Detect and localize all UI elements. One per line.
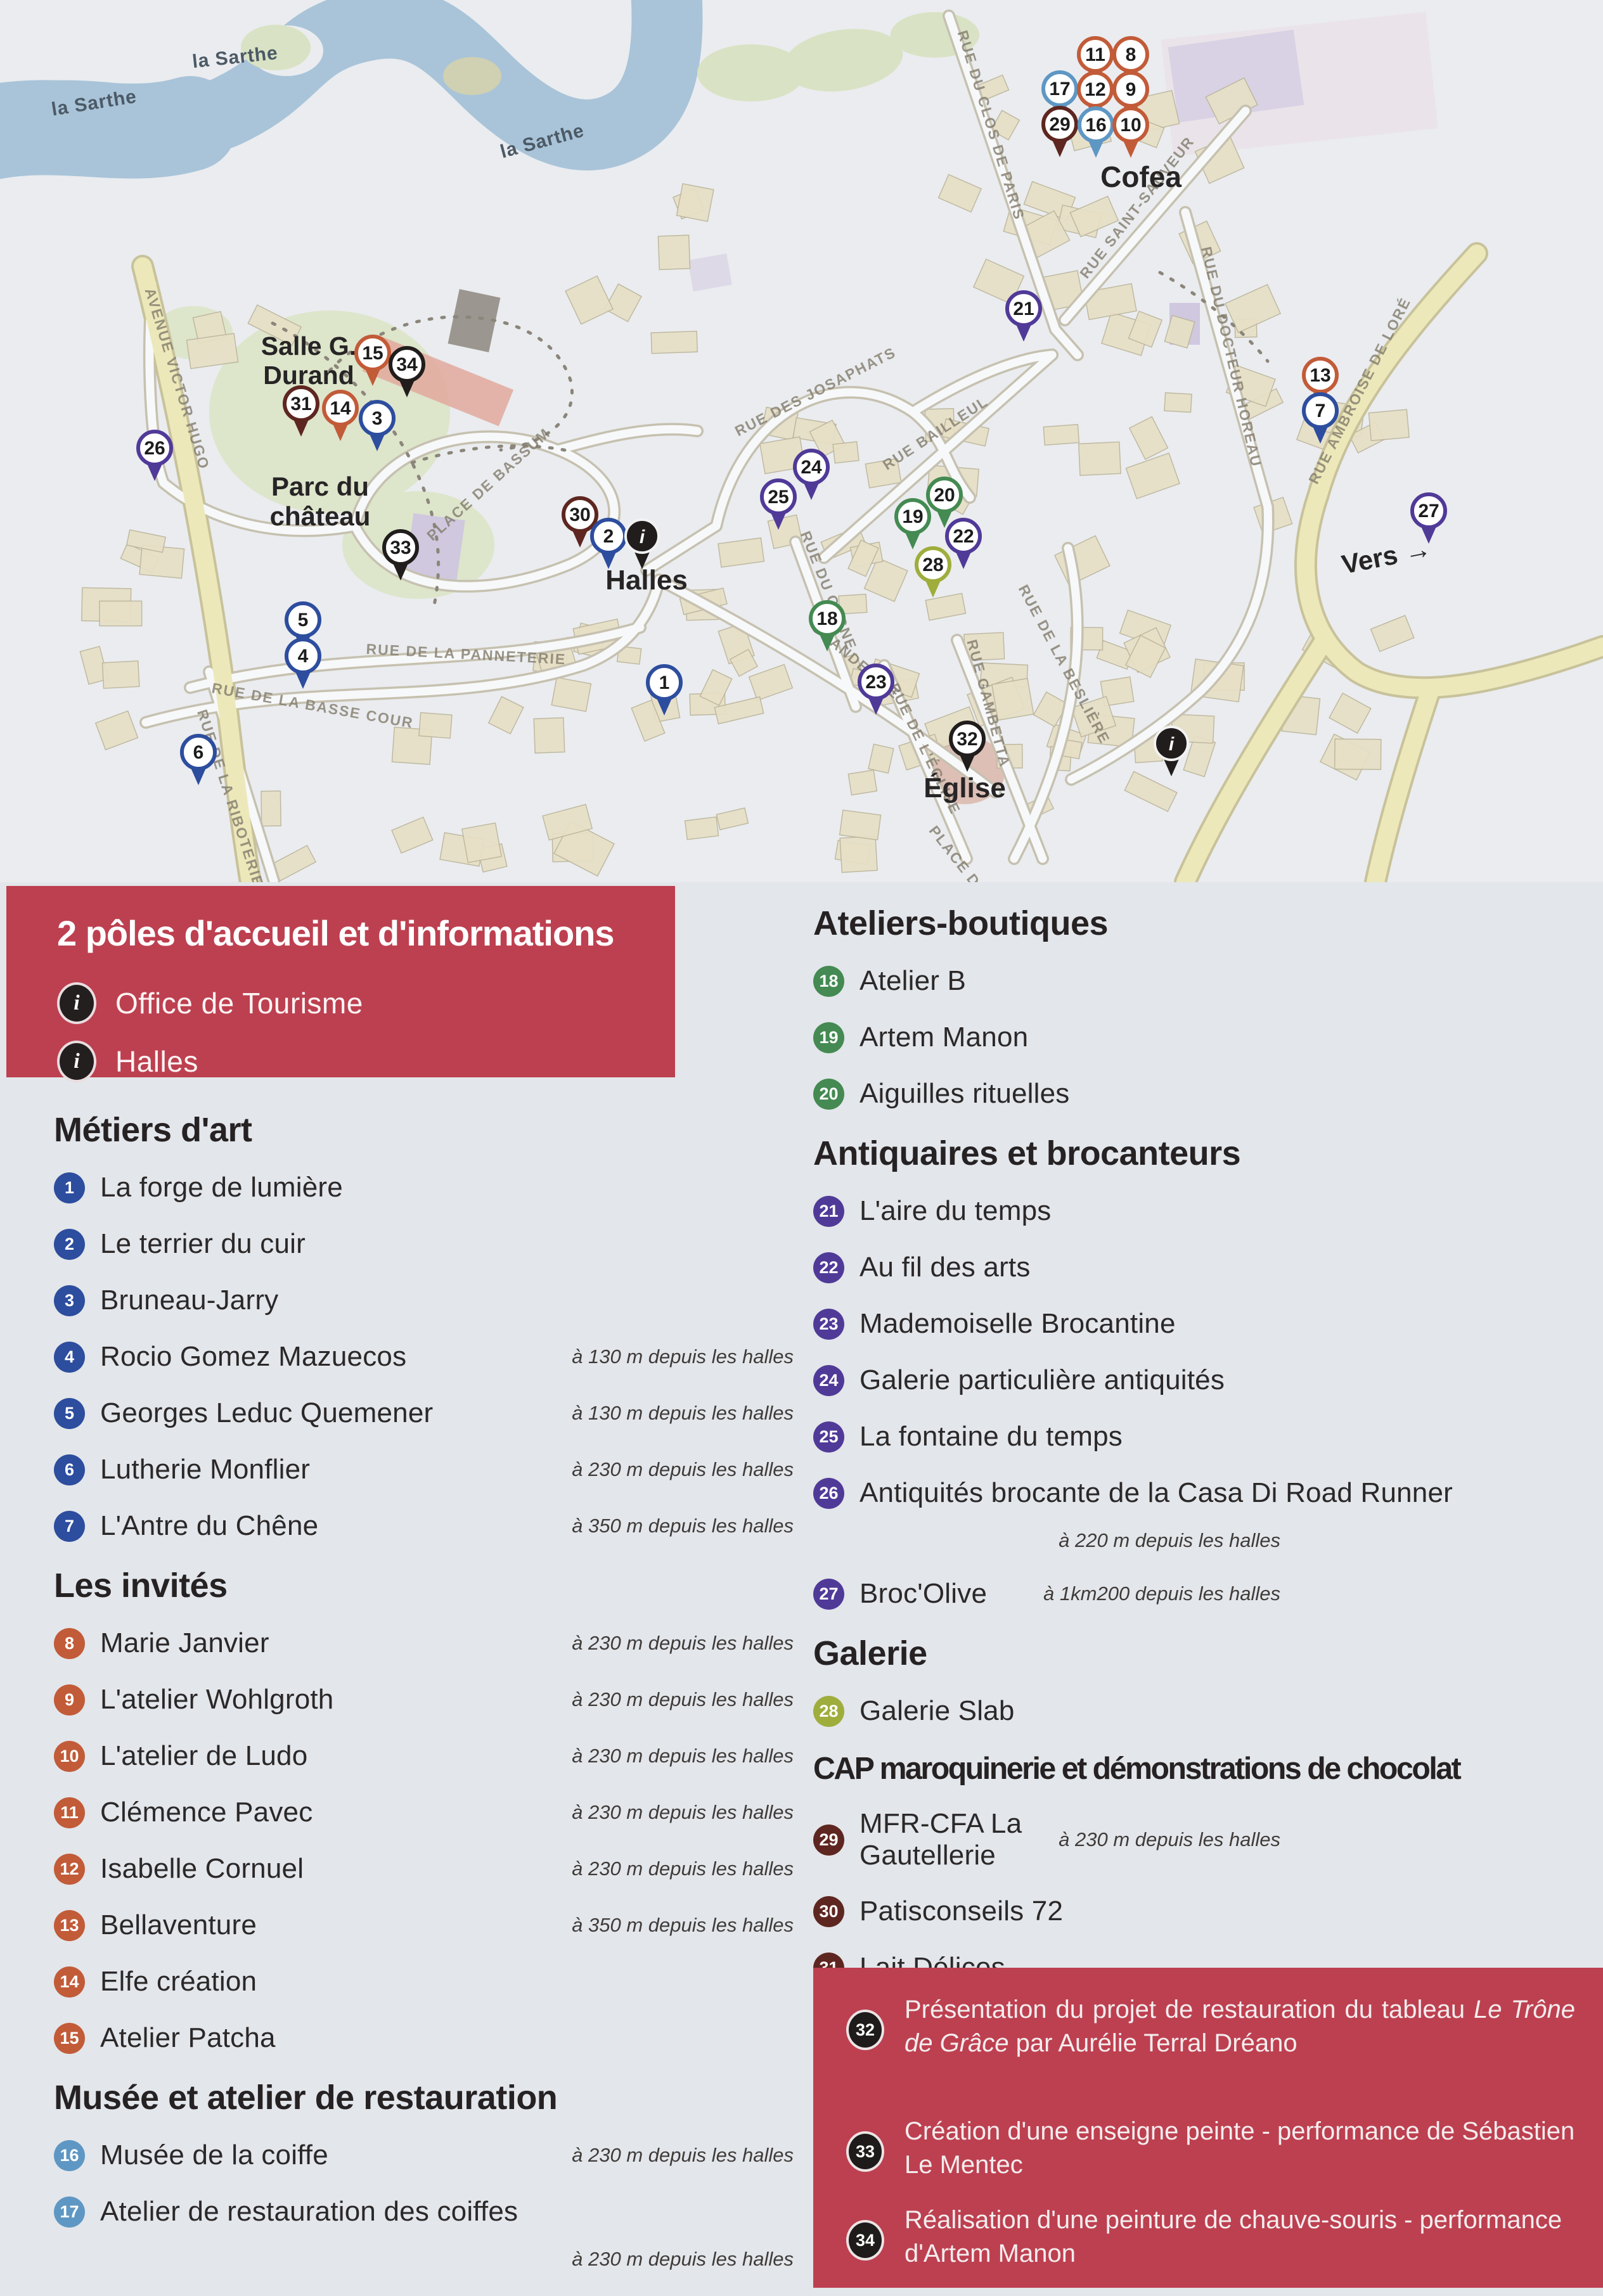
legend-item-3: 3Bruneau-Jarry [54, 1284, 799, 1317]
legend-item-label: Atelier de restauration des coiffes [100, 2196, 518, 2228]
svg-text:3: 3 [372, 408, 383, 429]
distance-note: à 230 m depuis les halles [572, 1745, 794, 1767]
legend-item-number: 16 [54, 2140, 85, 2171]
legend-item-number: 3 [54, 1285, 85, 1316]
legend-item-label: La fontaine du temps [859, 1421, 1123, 1453]
distance-note: à 230 m depuis les halles [572, 1632, 794, 1655]
svg-text:24: 24 [801, 457, 822, 478]
svg-text:28: 28 [922, 555, 943, 575]
svg-text:22: 22 [953, 526, 974, 547]
info-icon: i [57, 982, 96, 1024]
svg-text:12: 12 [1085, 79, 1105, 100]
performance-item-34: 34Réalisation d'une peinture de chauve-s… [846, 2203, 1575, 2271]
distance-note: à 230 m depuis les halles [1059, 1828, 1280, 1851]
legend-item-label: Antiquités brocante de la Casa Di Road R… [859, 1477, 1453, 1509]
distance-note: à 230 m depuis les halles [54, 2248, 799, 2271]
legend-item-label: Galerie particulière antiquités [859, 1364, 1225, 1396]
legend-item-label: Bellaventure [100, 1909, 257, 1941]
legend-item-4: 4Rocio Gomez Mazuecosà 130 m depuis les … [54, 1340, 799, 1373]
performance-item-text: Réalisation d'une peinture de chauve-sou… [905, 2203, 1575, 2271]
legend-item-2: 2Le terrier du cuir [54, 1228, 799, 1260]
legend-item-26: 26Antiquités brocante de la Casa Di Road… [813, 1477, 1594, 1510]
legend-item-number: 27 [813, 1579, 844, 1610]
svg-text:27: 27 [1418, 501, 1439, 522]
legend-item-number: 21 [813, 1196, 844, 1227]
legend-item-number: 7 [54, 1511, 85, 1542]
distance-note: à 350 m depuis les halles [572, 1515, 794, 1537]
town-map: AVENUE VICTOR HUGORUE DE LA RIBOTERIERUE… [0, 0, 1603, 882]
svg-text:1: 1 [659, 672, 670, 693]
legend-item-number: 22 [813, 1252, 844, 1283]
info-points-box: 2 pôles d'accueil et d'informations iOff… [6, 886, 675, 1077]
legend-item-number: 13 [54, 1910, 85, 1941]
legend-item-number: 29 [813, 1825, 844, 1856]
legend-item-16: 16Musée de la coiffeà 230 m depuis les h… [54, 2139, 799, 2172]
svg-text:17: 17 [1049, 79, 1070, 99]
legend-item-30: 30Patisconseils 72 [813, 1895, 1594, 1928]
svg-text:8: 8 [1126, 44, 1136, 65]
legend-item-label: La forge de lumière [100, 1172, 343, 1203]
performances-box: 32Présentation du projet de restauration… [813, 1968, 1603, 2288]
svg-text:34: 34 [396, 354, 418, 375]
legend-item-28: 28Galerie Slab [813, 1695, 1594, 1728]
legend-item-number: 8 [54, 1628, 85, 1659]
legend-item-8: 8Marie Janvierà 230 m depuis les halles [54, 1627, 799, 1660]
legend-section-title: Les invités [54, 1566, 799, 1605]
legend-item-label: Clémence Pavec [100, 1797, 312, 1828]
legend-item-label: Aiguilles rituelles [859, 1078, 1070, 1110]
performance-item-number: 32 [846, 2010, 884, 2050]
svg-text:10: 10 [1120, 115, 1141, 136]
legend-column-right: Ateliers-boutiques18Atelier B19Artem Man… [813, 895, 1594, 2008]
info-box-item: iHalles [57, 1041, 198, 1082]
svg-text:13: 13 [1310, 365, 1330, 386]
legend-item-number: 6 [54, 1454, 85, 1485]
legend-item-number: 10 [54, 1741, 85, 1772]
svg-text:31: 31 [290, 394, 311, 414]
legend-item-label: Artem Manon [859, 1022, 1028, 1053]
legend-item-number: 14 [54, 1966, 85, 1998]
legend-item-label: Atelier B [859, 965, 966, 997]
legend-item-24: 24Galerie particulière antiquités [813, 1364, 1594, 1397]
svg-text:14: 14 [330, 398, 351, 419]
legend-item-number: 11 [54, 1797, 85, 1828]
legend-item-18: 18Atelier B [813, 965, 1594, 997]
svg-text:6: 6 [193, 742, 204, 763]
legend-item-number: 17 [54, 2197, 85, 2228]
legend-item-29: 29MFR-CFA La Gautellerieà 230 m depuis l… [813, 1808, 1594, 1871]
distance-note: à 230 m depuis les halles [572, 1857, 794, 1880]
legend-item-label: Patisconseils 72 [859, 1895, 1063, 1927]
legend-item-25: 25La fontaine du temps [813, 1420, 1594, 1453]
legend-item-number: 28 [813, 1696, 844, 1727]
legend-item-number: 5 [54, 1398, 85, 1429]
legend-item-12: 12Isabelle Cornuelà 230 m depuis les hal… [54, 1852, 799, 1885]
svg-text:32: 32 [956, 729, 977, 750]
legend-item-15: 15Atelier Patcha [54, 2022, 799, 2055]
legend-item-label: Rocio Gomez Mazuecos [100, 1341, 406, 1373]
legend-item-10: 10L'atelier de Ludoà 230 m depuis les ha… [54, 1740, 799, 1773]
legend-item-27: 27Broc'Oliveà 1km200 depuis les halles [813, 1577, 1594, 1610]
legend-section-title: Galerie [813, 1634, 1594, 1673]
svg-text:i: i [640, 527, 645, 548]
legend-item-label: Mademoiselle Brocantine [859, 1308, 1176, 1340]
legend-item-label: Bruneau-Jarry [100, 1285, 278, 1316]
svg-text:i: i [1169, 734, 1175, 755]
legend-section-title: Musée et atelier de restauration [54, 2078, 799, 2117]
info-icon: i [57, 1041, 96, 1082]
legend-item-9: 9L'atelier Wohlgrothà 230 m depuis les h… [54, 1683, 799, 1716]
legend-item-17: 17Atelier de restauration des coiffes [54, 2195, 799, 2228]
svg-text:9: 9 [1126, 79, 1136, 100]
distance-note: à 1km200 depuis les halles [1043, 1582, 1280, 1605]
distance-note: à 220 m depuis les halles [813, 1529, 1594, 1552]
legend-item-19: 19Artem Manon [813, 1021, 1594, 1054]
legend-item-number: 26 [813, 1478, 844, 1509]
info-box-item: iOffice de Tourisme [57, 982, 363, 1024]
legend-item-label: Lutherie Monflier [100, 1454, 310, 1485]
performance-item-32: 32Présentation du projet de restauration… [846, 1993, 1575, 2060]
legend-item-label: L'aire du temps [859, 1195, 1051, 1227]
place-label: Cofea [1100, 160, 1181, 193]
legend-item-number: 18 [813, 966, 844, 997]
legend-item-label: Atelier Patcha [100, 2022, 276, 2054]
distance-note: à 230 m depuis les halles [572, 1688, 794, 1711]
legend-item-number: 30 [813, 1896, 844, 1927]
distance-note: à 230 m depuis les halles [572, 1801, 794, 1824]
legend-item-number: 9 [54, 1684, 85, 1716]
svg-text:29: 29 [1049, 114, 1070, 135]
legend-item-14: 14Elfe création [54, 1965, 799, 1998]
svg-text:33: 33 [390, 537, 411, 558]
legend-item-label: Isabelle Cornuel [100, 1853, 304, 1885]
svg-text:15: 15 [362, 343, 383, 364]
performance-item-text: Présentation du projet de restauration d… [905, 1993, 1575, 2060]
svg-text:20: 20 [934, 485, 955, 506]
legend-item-5: 5Georges Leduc Quemenerà 130 m depuis le… [54, 1397, 799, 1430]
svg-text:23: 23 [865, 672, 886, 693]
legend-item-number: 1 [54, 1172, 85, 1203]
legend-item-number: 20 [813, 1079, 844, 1110]
legend-column-left: Métiers d'art1La forge de lumière2Le ter… [54, 1101, 799, 2296]
svg-text:2: 2 [603, 526, 614, 547]
legend-item-22: 22Au fil des arts [813, 1251, 1594, 1284]
legend-section-title: Antiquaires et brocanteurs [813, 1134, 1594, 1173]
svg-text:16: 16 [1085, 115, 1106, 136]
place-label: Salle G.Durand [261, 331, 356, 390]
performance-item-number: 33 [846, 2131, 884, 2172]
legend-item-label: Au fil des arts [859, 1252, 1031, 1283]
legend-item-21: 21L'aire du temps [813, 1195, 1594, 1228]
info-box-title: 2 pôles d'accueil et d'informations [57, 913, 659, 954]
legend-item-label: L'Antre du Chêne [100, 1510, 318, 1542]
svg-text:11: 11 [1085, 44, 1105, 65]
svg-text:26: 26 [144, 438, 165, 459]
svg-text:30: 30 [569, 504, 590, 525]
legend-item-label: MFR-CFA La Gautellerie [859, 1808, 1059, 1871]
distance-note: à 130 m depuis les halles [572, 1345, 794, 1368]
legend-item-11: 11Clémence Pavecà 230 m depuis les halle… [54, 1796, 799, 1829]
legend-item-label: Musée de la coiffe [100, 2139, 328, 2171]
legend-item-label: Broc'Olive [859, 1578, 987, 1610]
legend-item-1: 1La forge de lumière [54, 1171, 799, 1204]
place-label: Église [924, 772, 1006, 804]
svg-text:21: 21 [1013, 298, 1034, 319]
map-canvas: AVENUE VICTOR HUGORUE DE LA RIBOTERIERUE… [0, 0, 1603, 882]
legend-item-number: 2 [54, 1229, 85, 1260]
legend-item-number: 19 [813, 1022, 844, 1053]
svg-text:19: 19 [902, 506, 923, 527]
legend-item-23: 23Mademoiselle Brocantine [813, 1307, 1594, 1340]
legend-item-6: 6Lutherie Monflierà 230 m depuis les hal… [54, 1453, 799, 1486]
performance-item-text: Création d'une enseigne peinte - perform… [905, 2115, 1575, 2182]
legend-item-label: Galerie Slab [859, 1695, 1015, 1727]
info-box-item-label: Halles [115, 1044, 198, 1079]
legend-item-label: L'atelier Wohlgroth [100, 1684, 333, 1716]
distance-note: à 230 m depuis les halles [572, 2144, 794, 2167]
legend-item-number: 24 [813, 1365, 844, 1396]
legend-item-13: 13Bellaventureà 350 m depuis les halles [54, 1909, 799, 1942]
legend-item-20: 20Aiguilles rituelles [813, 1077, 1594, 1110]
distance-note: à 230 m depuis les halles [572, 1458, 794, 1481]
legend-section-title: CAP maroquinerie et démonstrations de ch… [813, 1751, 1583, 1786]
legend-item-7: 7L'Antre du Chêneà 350 m depuis les hall… [54, 1510, 799, 1542]
svg-text:25: 25 [768, 487, 789, 508]
legend-section-title: Ateliers-boutiques [813, 904, 1594, 943]
info-box-item-label: Office de Tourisme [115, 986, 363, 1020]
place-label: Parc duchâteau [270, 471, 371, 531]
legend-item-number: 15 [54, 2023, 85, 2054]
distance-note: à 350 m depuis les halles [572, 1914, 794, 1937]
performance-item-number: 34 [846, 2220, 884, 2261]
svg-text:4: 4 [298, 646, 309, 667]
legend-item-number: 23 [813, 1309, 844, 1340]
legend-item-label: Marie Janvier [100, 1627, 269, 1659]
svg-text:18: 18 [816, 608, 837, 629]
svg-text:7: 7 [1315, 401, 1326, 421]
performance-item-33: 33Création d'une enseigne peinte - perfo… [846, 2115, 1575, 2182]
legend-item-label: Georges Leduc Quemener [100, 1397, 433, 1429]
legend-item-label: Elfe création [100, 1966, 257, 1998]
distance-note: à 130 m depuis les halles [572, 1402, 794, 1425]
legend-item-number: 25 [813, 1421, 844, 1453]
legend-item-number: 12 [54, 1854, 85, 1885]
svg-text:5: 5 [298, 610, 309, 631]
legend-section-title: Métiers d'art [54, 1110, 799, 1150]
place-label: Halles [605, 565, 688, 596]
legend-item-label: L'atelier de Ludo [100, 1740, 307, 1772]
legend-item-label: Le terrier du cuir [100, 1228, 306, 1260]
legend-item-number: 4 [54, 1342, 85, 1373]
